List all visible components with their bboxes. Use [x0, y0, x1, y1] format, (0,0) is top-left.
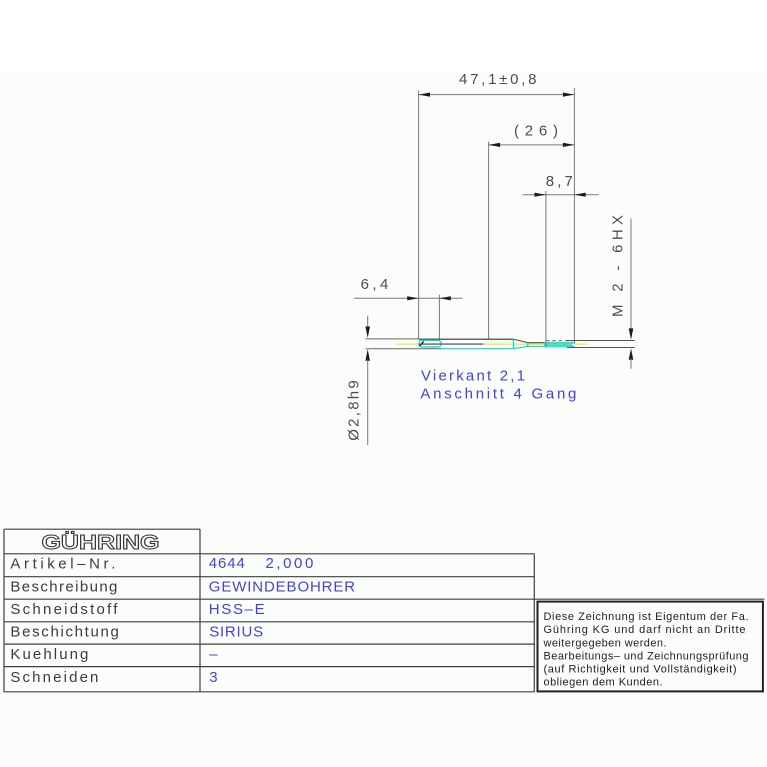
svg-text:Gühring KG und darf nicht an D: Gühring KG und darf nicht an Dritte: [544, 624, 746, 636]
svg-text:Diese Zeichnung ist Eigentum d: Diese Zeichnung ist Eigentum der Fa.: [544, 611, 749, 623]
svg-text:6,4: 6,4: [361, 276, 389, 293]
svg-text:–: –: [209, 646, 218, 663]
svg-text:8,7: 8,7: [546, 173, 573, 190]
svg-text:Ø2,8h9: Ø2,8h9: [346, 380, 363, 441]
svg-text:2,000: 2,000: [266, 555, 314, 572]
svg-text:Beschreibung: Beschreibung: [10, 579, 117, 596]
svg-text:weitergegeben werden.: weitergegeben werden.: [543, 637, 667, 649]
svg-text:Beschichtung: Beschichtung: [10, 624, 119, 641]
svg-text:Schneidstoff: Schneidstoff: [10, 601, 118, 618]
svg-text:Kuehlung: Kuehlung: [10, 646, 88, 663]
svg-text:HSS–E: HSS–E: [209, 601, 265, 618]
svg-text:SIRIUS: SIRIUS: [209, 624, 263, 641]
svg-text:4644: 4644: [209, 555, 245, 572]
svg-text:(auf Richtigkeit und Vollständ: (auf Richtigkeit und Vollständigkeit): [544, 664, 737, 676]
svg-text:Artikel–Nr.: Artikel–Nr.: [10, 556, 115, 573]
svg-text:GEWINDEBOHRER: GEWINDEBOHRER: [209, 579, 355, 596]
svg-text:3: 3: [209, 669, 217, 686]
svg-text:obliegen dem Kunden.: obliegen dem Kunden.: [544, 677, 663, 689]
svg-text:Bearbeitungs– und Zeichnungspr: Bearbeitungs– und Zeichnungsprüfung: [544, 650, 749, 662]
svg-text:Schneiden: Schneiden: [10, 669, 98, 686]
svg-text:GÜHRING: GÜHRING: [42, 531, 160, 554]
